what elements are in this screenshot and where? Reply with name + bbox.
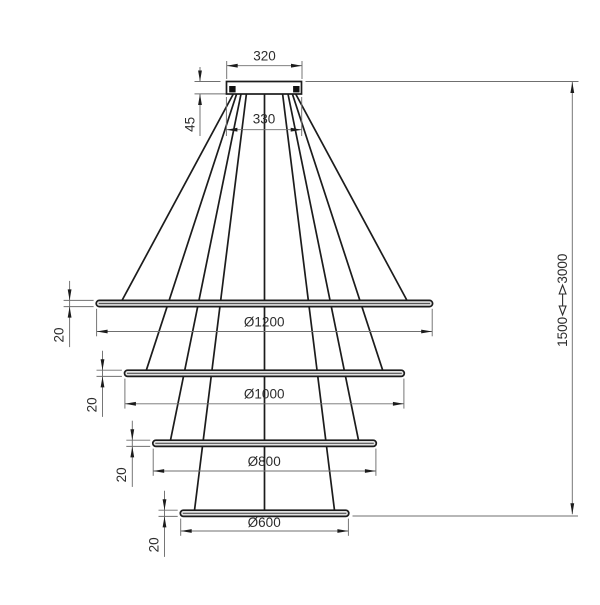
svg-text:20: 20 [114, 467, 129, 482]
svg-text:45: 45 [183, 117, 198, 132]
svg-text:20: 20 [84, 397, 99, 412]
svg-text:Ø800: Ø800 [248, 454, 281, 469]
svg-text:20: 20 [146, 537, 161, 552]
svg-text:Ø600: Ø600 [248, 515, 281, 530]
svg-text:3000: 3000 [555, 254, 570, 284]
svg-text:320: 320 [253, 49, 276, 64]
svg-text:Ø1200: Ø1200 [244, 315, 285, 330]
svg-text:Ø1000: Ø1000 [244, 387, 285, 402]
svg-text:20: 20 [52, 327, 67, 342]
svg-text:330: 330 [253, 112, 276, 127]
svg-text:1500: 1500 [555, 317, 570, 347]
